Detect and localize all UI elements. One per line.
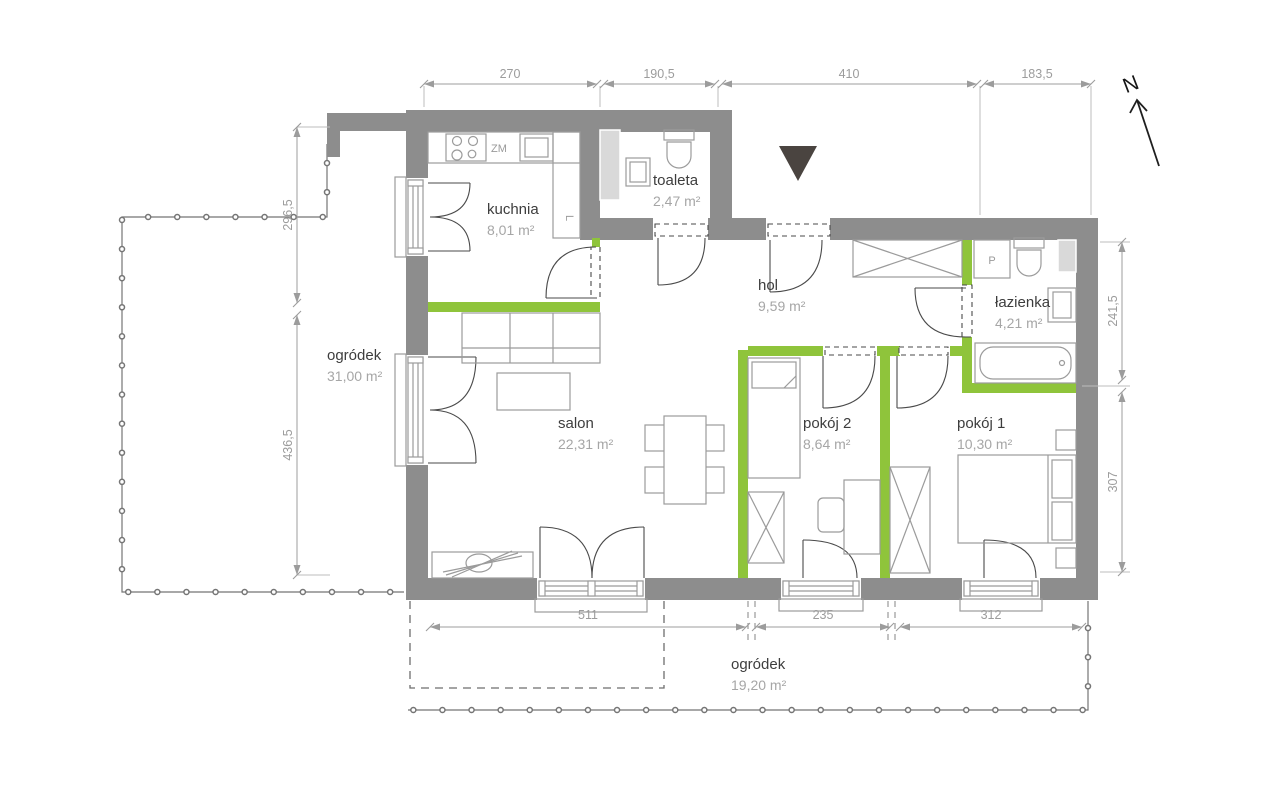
floor-plan: ZM L P [0, 0, 1280, 801]
room-label-kuchnia: kuchnia 8,01 m² [487, 200, 539, 240]
coffee-table-icon [497, 373, 570, 410]
dim-bottom-2: 235 [813, 608, 834, 622]
washer-label: P [988, 255, 995, 267]
room-area: 4,21 m² [995, 313, 1050, 333]
room-area: 31,00 m² [327, 366, 382, 386]
window-symbols [395, 177, 1042, 612]
entrance-arrow-marker [779, 146, 817, 181]
pillow-icon [1052, 460, 1072, 498]
duct-shaft [600, 130, 620, 200]
room-label-pokoj2: pokój 2 8,64 m² [803, 414, 851, 454]
room-area: 2,47 m² [653, 191, 700, 211]
floor-plan-drawing: ZM L P [0, 0, 1280, 801]
dim-top-3: 410 [839, 67, 860, 81]
nightstand-icon [1056, 430, 1076, 450]
room-label-ogrodek-left: ogródek 31,00 m² [327, 346, 382, 386]
single-bed-icon [748, 358, 800, 478]
pokoj2-furniture [748, 358, 880, 563]
room-name: kuchnia [487, 200, 539, 220]
terrace-dashed-outline [410, 601, 664, 688]
room-label-pokoj1: pokój 1 10,30 m² [957, 414, 1012, 454]
room-label-ogrodek-bottom: ogródek 19,20 m² [731, 655, 786, 695]
room-name: toaleta [653, 171, 700, 191]
desk-icon [844, 480, 880, 554]
room-label-salon: salon 22,31 m² [558, 414, 613, 454]
room-name: ogródek [327, 346, 382, 366]
room-area: 9,59 m² [758, 296, 805, 316]
north-arrow [1130, 100, 1159, 166]
bathtub-icon [975, 343, 1076, 383]
room-area: 19,20 m² [731, 675, 786, 695]
dining-table-icon [664, 416, 706, 504]
dim-top-2: 190,5 [643, 67, 674, 81]
dim-right-2: 307 [1106, 472, 1120, 493]
desk-chair-icon [818, 498, 844, 532]
room-area: 10,30 m² [957, 434, 1012, 454]
room-name: pokój 2 [803, 414, 851, 434]
fridge-label: L [563, 215, 575, 221]
dim-top-4: 183,5 [1021, 67, 1052, 81]
room-label-toaleta: toaleta 2,47 m² [653, 171, 700, 211]
dim-top-1: 270 [500, 67, 521, 81]
room-name: pokój 1 [957, 414, 1012, 434]
room-name: hol [758, 276, 805, 296]
room-name: ogródek [731, 655, 786, 675]
dim-right-1: 241,5 [1106, 295, 1120, 326]
dim-left-1: 296,5 [281, 199, 295, 230]
duct-shaft [1058, 240, 1076, 272]
room-label-lazienka: łazienka 4,21 m² [995, 293, 1050, 333]
dim-left-2: 436,5 [281, 429, 295, 460]
room-name: salon [558, 414, 613, 434]
nightstand-icon [1056, 548, 1076, 568]
room-area: 8,64 m² [803, 434, 851, 454]
washbasin-icon [1048, 288, 1076, 322]
room-area: 8,01 m² [487, 220, 539, 240]
hol-fixtures [853, 240, 962, 277]
pillow-icon [752, 362, 796, 388]
partition-walls-green [428, 238, 1076, 578]
dim-bottom-1: 511 [578, 608, 598, 622]
door-symbols [428, 183, 1036, 578]
double-bed-icon [958, 455, 1076, 543]
room-area: 22,31 m² [558, 434, 613, 454]
room-name: łazienka [995, 293, 1050, 313]
room-label-hol: hol 9,59 m² [758, 276, 805, 316]
sofa-icon [462, 313, 600, 363]
kitchen-sink-label: ZM [491, 143, 507, 155]
dim-bottom-3: 312 [981, 608, 1002, 622]
pillow-icon [1052, 502, 1072, 540]
